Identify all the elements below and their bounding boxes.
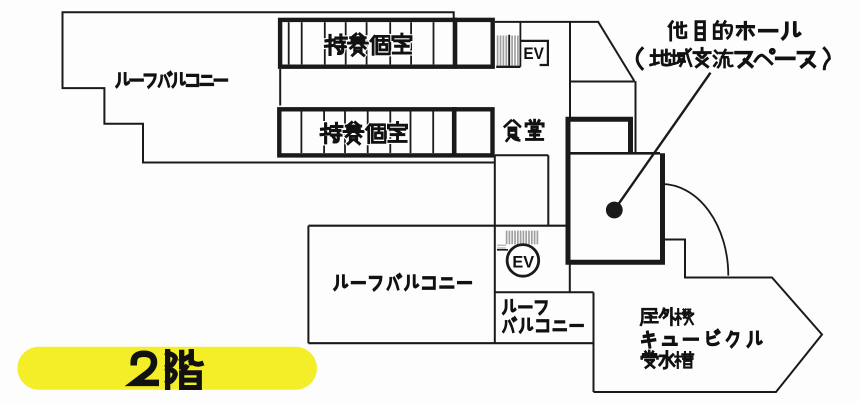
svg-text:EV: EV <box>523 45 544 63</box>
svg-text:EV: EV <box>512 253 534 271</box>
